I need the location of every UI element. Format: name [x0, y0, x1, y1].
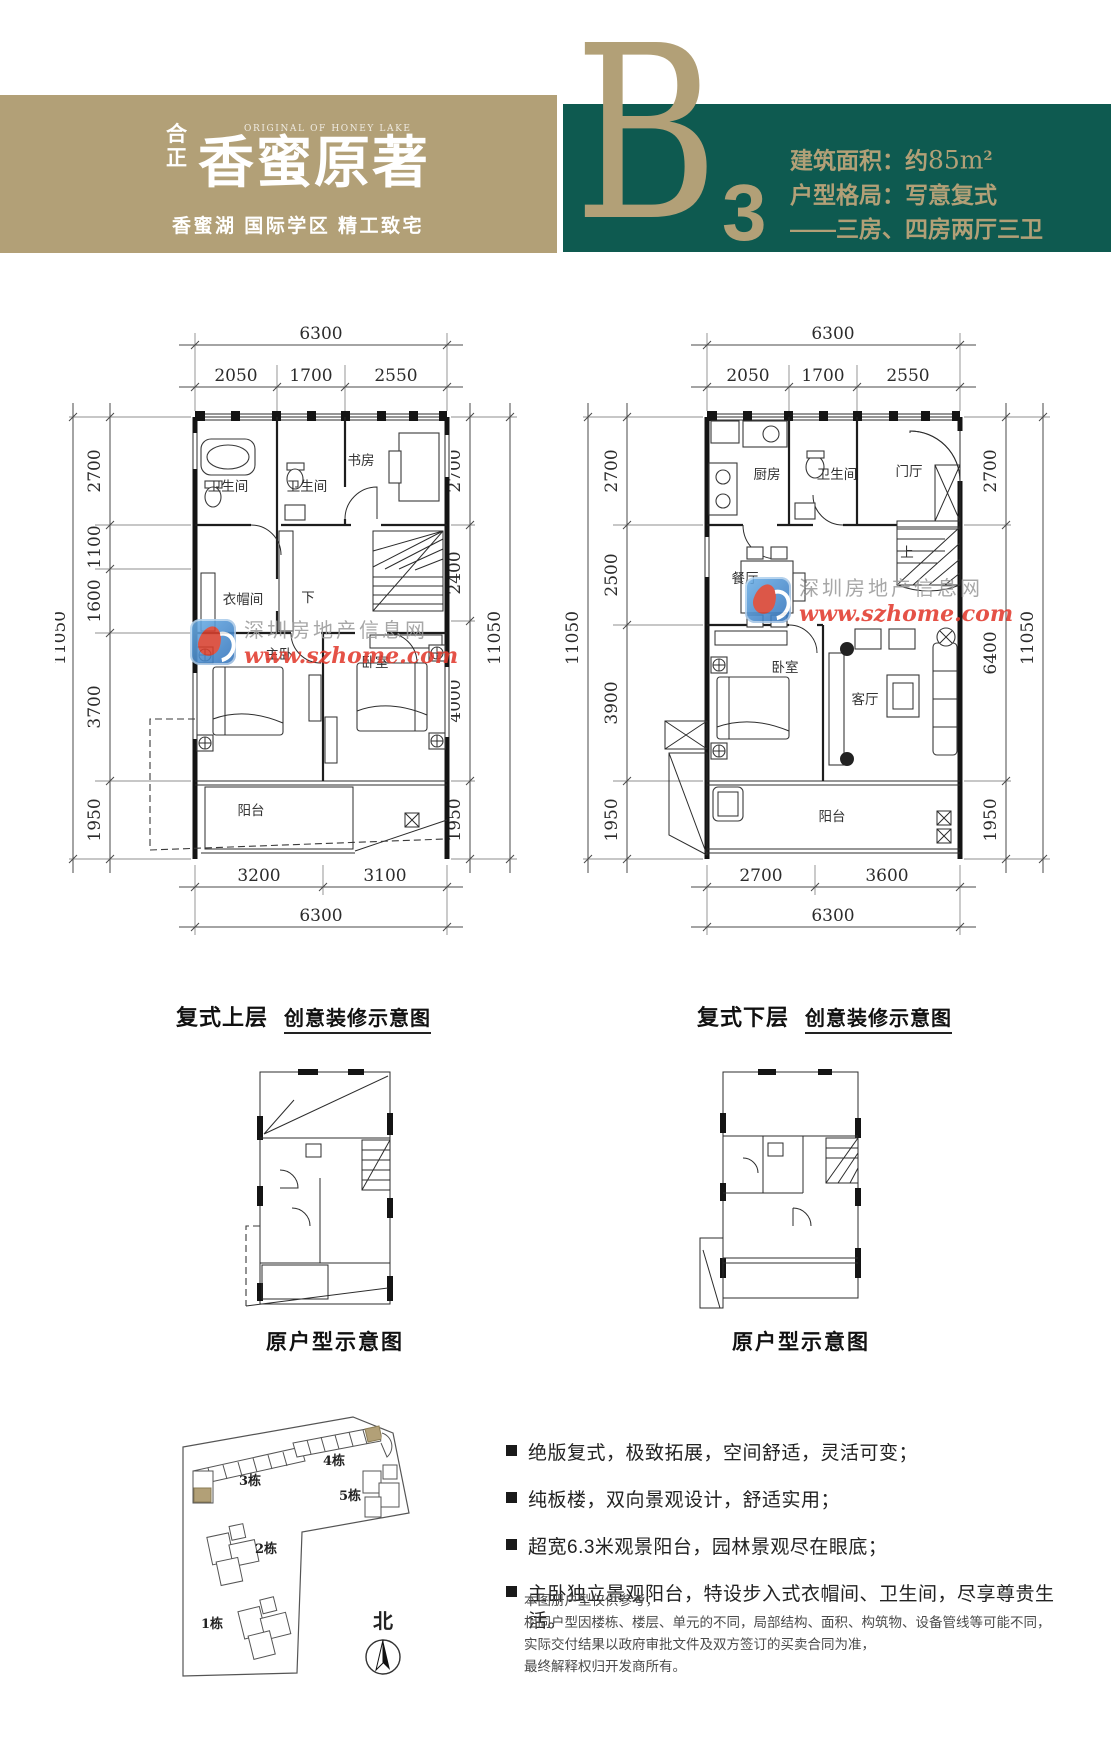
- upper-plan-caption-sub: 创意装修示意图: [284, 1008, 431, 1034]
- room-label-bedroom: 卧室: [772, 659, 799, 675]
- lower-plan-bottom-dims: 2700 3600 6300: [691, 865, 976, 935]
- site-label-5: 5栋: [339, 1488, 361, 1504]
- svg-text:2550: 2550: [374, 366, 417, 386]
- svg-text:2700: 2700: [981, 449, 1001, 492]
- room-label-master: 主卧: [266, 647, 293, 662]
- spec-area: 建筑面积：约85m2: [790, 140, 1043, 178]
- upper-plan-caption-title: 复式上层: [176, 1005, 268, 1030]
- bullet-square-icon: [506, 1539, 517, 1550]
- original-plan-upper: [240, 1058, 410, 1318]
- lower-plan-left-dims: 11050 2700 2500 3900 1950: [563, 403, 703, 873]
- svg-text:1950: 1950: [981, 798, 1001, 841]
- bullet-square-icon: [506, 1445, 517, 1456]
- lower-plan-top-dims: 6300 2050 1700 2550: [691, 324, 976, 411]
- room-label-bath2: 卫生间: [287, 479, 328, 494]
- feature-item: 绝版复式，极致拓展，空间舒适，灵活可变；: [506, 1438, 1066, 1465]
- svg-text:1950: 1950: [602, 798, 622, 841]
- unit-letter: B: [574, 14, 719, 254]
- svg-text:6300: 6300: [811, 906, 854, 926]
- svg-text:3600: 3600: [865, 866, 908, 886]
- disclaimer: 本图册户型仅供参考， 相同户型因楼栋、楼层、单元的不同，局部结构、面积、构筑物、…: [524, 1590, 1084, 1677]
- original-plan-upper-caption: 原户型示意图: [250, 1326, 420, 1356]
- svg-text:1100: 1100: [85, 525, 105, 568]
- room-label-dining: 餐厅: [732, 571, 759, 586]
- svg-text:2050: 2050: [726, 366, 769, 386]
- room-label-balcony: 阳台: [819, 809, 846, 824]
- svg-text:北: 北: [373, 1609, 393, 1633]
- upper-plan-left-dims: 11050 2700 1100 1600 3700 1950: [55, 403, 191, 873]
- unit-number: 3: [722, 173, 767, 253]
- svg-text:3900: 3900: [602, 681, 622, 724]
- svg-text:6300: 6300: [299, 324, 342, 344]
- upper-plan-bottom-dims: 3200 3100 6300: [179, 865, 463, 935]
- room-label-bath1: 卫生间: [208, 479, 249, 494]
- stair-direction-label: 下: [301, 590, 315, 605]
- svg-text:1600: 1600: [85, 579, 105, 622]
- room-label-bedroom: 卧室: [362, 654, 389, 670]
- room-label-bath: 卫生间: [817, 467, 858, 482]
- site-label-3: 3栋: [239, 1473, 261, 1489]
- svg-text:3200: 3200: [237, 866, 280, 886]
- svg-text:6300: 6300: [299, 906, 342, 926]
- svg-text:3100: 3100: [363, 866, 406, 886]
- room-label-study: 书房: [348, 453, 375, 468]
- brand-mark: 合 正: [0, 123, 187, 171]
- svg-text:11050: 11050: [563, 611, 583, 665]
- upper-plan-stairs: 下: [301, 531, 443, 611]
- brochure-page: 合 正 ORIGINAL OF HONEY LAKE 香蜜原著 香蜜湖 国际学区…: [0, 0, 1111, 1738]
- disclaimer-line: 相同户型因楼栋、楼层、单元的不同，局部结构、面积、构筑物、设备管线等可能不同，: [524, 1612, 1084, 1634]
- svg-text:3700: 3700: [85, 685, 105, 728]
- svg-text:11050: 11050: [1018, 611, 1038, 665]
- svg-text:1950: 1950: [85, 798, 105, 841]
- north-arrow-icon: 北: [366, 1609, 400, 1674]
- svg-text:2700: 2700: [739, 866, 782, 886]
- original-plan-lower: [698, 1058, 888, 1318]
- svg-text:2550: 2550: [886, 366, 929, 386]
- feature-item: 纯板楼，双向景观设计，舒适实用；: [506, 1485, 1066, 1512]
- disclaimer-line: 最终解释权归开发商所有。: [524, 1656, 1084, 1678]
- svg-text:2700: 2700: [85, 449, 105, 492]
- lower-plan-wardrobes: [715, 631, 787, 645]
- upper-floor-plan: 6300 2050 1700 2550 3200 3100 6300 11: [55, 315, 525, 960]
- unit-specs: 建筑面积：约85m2 户型格局：写意复式 ——三房、四房两厅三卫: [790, 140, 1043, 246]
- disclaimer-line: 本图册户型仅供参考，: [524, 1590, 1084, 1612]
- brand-mark-bottom: 正: [166, 147, 187, 171]
- spec-layout: 户型格局：写意复式: [790, 178, 1043, 212]
- brand-mark-top: 合: [166, 123, 187, 147]
- svg-text:1700: 1700: [801, 366, 844, 386]
- room-label-balcony: 阳台: [238, 803, 265, 818]
- room-label-cloak: 衣帽间: [223, 592, 264, 607]
- svg-text:2500: 2500: [602, 553, 622, 596]
- bullet-square-icon: [506, 1492, 517, 1503]
- room-label-foyer: 门厅: [896, 464, 923, 479]
- disclaimer-line: 实际交付结果以政府审批文件及双方签订的买卖合同为准，: [524, 1634, 1084, 1656]
- lower-floor-plan: 6300 2050 1700 2550 2700 3600 6300 11: [545, 315, 1065, 960]
- feature-item: 超宽6.3米观景阳台，园林景观尽在眼底；: [506, 1532, 1066, 1559]
- room-label-kitchen: 厨房: [754, 467, 781, 482]
- lower-plan-furniture: [709, 421, 957, 843]
- site-plan: 3栋 4栋 5栋 2栋 1栋 北: [155, 1385, 490, 1720]
- site-label-1: 1栋: [201, 1616, 223, 1632]
- brand-tagline: 香蜜湖 国际学区 精工致宅: [172, 211, 424, 238]
- lower-plan-caption: 复式下层创意装修示意图: [697, 1000, 952, 1032]
- svg-text:11050: 11050: [55, 611, 70, 665]
- site-label-2: 2栋: [255, 1541, 277, 1557]
- lower-plan-caption-sub: 创意装修示意图: [805, 1008, 952, 1034]
- upper-plan-top-dims: 6300 2050 1700 2550: [179, 324, 463, 411]
- spec-rooms: ——三房、四房两厅三卫: [790, 212, 1043, 246]
- bullet-square-icon: [506, 1586, 517, 1597]
- upper-plan-right-dims: 2700 2400 4000 1950 11050: [445, 403, 517, 873]
- lower-plan-caption-title: 复式下层: [697, 1005, 789, 1030]
- upper-plan-caption: 复式上层创意装修示意图: [176, 1000, 431, 1032]
- stair-direction-label: 上: [900, 545, 914, 560]
- svg-text:11050: 11050: [485, 611, 505, 665]
- lower-plan-stairs: 上: [897, 521, 960, 591]
- room-label-living: 客厅: [852, 691, 879, 707]
- lower-plan-right-dims: 2700 6400 1950 11050: [964, 403, 1050, 873]
- svg-text:6300: 6300: [811, 324, 854, 344]
- svg-text:2050: 2050: [214, 366, 257, 386]
- brand-name: 香蜜原著: [198, 118, 430, 199]
- site-label-4: 4栋: [323, 1453, 345, 1469]
- svg-text:2700: 2700: [602, 449, 622, 492]
- svg-text:1700: 1700: [289, 366, 332, 386]
- original-plan-lower-caption: 原户型示意图: [706, 1326, 896, 1356]
- svg-text:6400: 6400: [981, 631, 1001, 674]
